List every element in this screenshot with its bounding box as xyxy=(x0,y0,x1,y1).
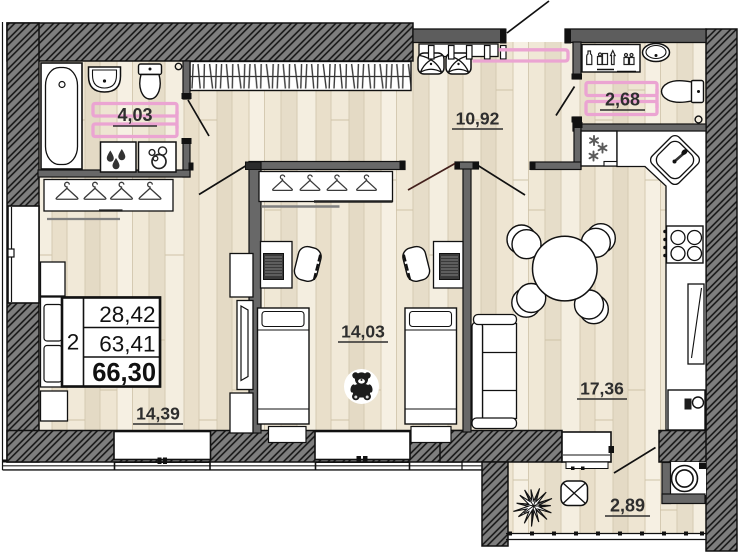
svg-text:63,41: 63,41 xyxy=(99,332,155,357)
svg-text:17,36: 17,36 xyxy=(580,379,624,399)
svg-text:2: 2 xyxy=(67,330,80,355)
svg-text:10,92: 10,92 xyxy=(456,109,500,129)
svg-text:2,89: 2,89 xyxy=(610,496,645,516)
svg-text:28,42: 28,42 xyxy=(99,302,155,327)
svg-text:14,39: 14,39 xyxy=(136,404,180,424)
svg-text:66,30: 66,30 xyxy=(92,359,156,387)
svg-text:4,03: 4,03 xyxy=(117,105,152,125)
svg-text:14,03: 14,03 xyxy=(341,322,385,342)
svg-text:2,68: 2,68 xyxy=(605,90,640,110)
